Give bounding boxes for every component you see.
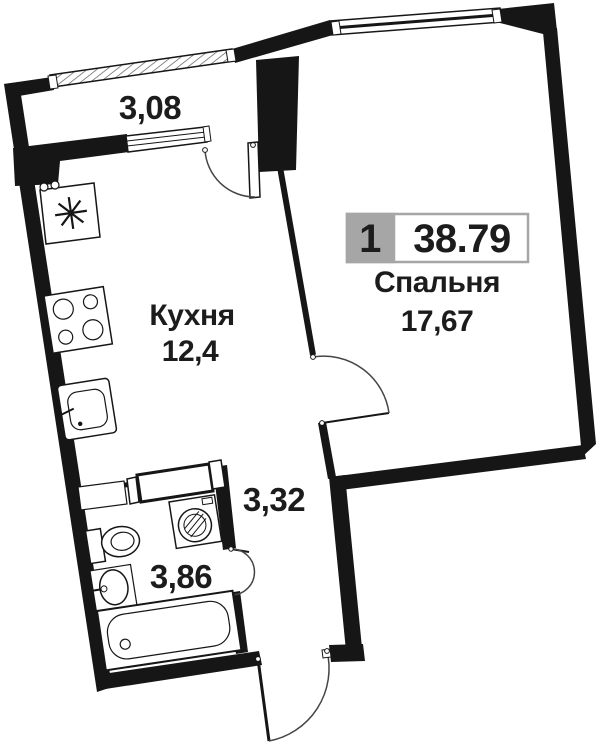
wall-top-right-corner	[498, 3, 557, 34]
entrance-door-leaf	[258, 659, 269, 741]
bedroom-window-left-stop	[331, 21, 341, 35]
band-left-jamb	[127, 477, 139, 504]
balcony-area-label: 3,08	[119, 89, 181, 126]
wall-hall-lower	[329, 475, 362, 651]
kitchen-window-right-jamb	[203, 126, 211, 142]
wall-kitchen-bedroom-partition	[280, 167, 313, 355]
entrance-door-arc	[269, 651, 329, 741]
wall-balcony-kitchen	[13, 134, 129, 186]
balcony-glazing-right-stop	[226, 49, 236, 62]
badge-room-count: 1	[359, 217, 381, 261]
bathroom-door-arc	[231, 549, 254, 595]
bedroom-name-label: Спальня	[374, 266, 500, 299]
wall-bedroom-bottom	[330, 445, 586, 491]
vent-knob-2	[51, 181, 59, 189]
wall-right	[543, 28, 596, 457]
kitchen-area-label: 12,4	[162, 335, 219, 368]
badge-total-area: 38.79	[413, 217, 511, 261]
kitchen-sink-icon	[57, 378, 117, 440]
vent-shaft-icon	[40, 181, 100, 244]
washing-machine-icon	[169, 495, 222, 549]
bedroom-door-arc	[313, 356, 389, 413]
hallway-area-label: 3,32	[243, 481, 305, 518]
wall-entrance-foot	[329, 644, 365, 662]
balcony-door-leaf	[248, 142, 260, 198]
stove-icon	[44, 287, 112, 354]
washbasin-icon	[90, 564, 137, 611]
bathroom-area-label: 3,86	[150, 558, 212, 595]
door-hinge-dots	[203, 143, 330, 662]
wall-top-middle	[232, 20, 333, 63]
floor-plan: 1 38.79 3,08 Кухня 12,4 Спальня 17,67 3,…	[0, 0, 600, 748]
balcony-glazing-window	[50, 49, 235, 87]
bedroom-door-leaf	[322, 413, 389, 423]
wall-balcony-bedroom-slab	[256, 56, 299, 172]
unit-badge: 1 38.79	[347, 214, 528, 262]
bathroom-shelf	[78, 481, 127, 510]
floor-plan-drawing: 1 38.79 3,08 Кухня 12,4 Спальня 17,67 3,…	[0, 0, 600, 748]
kitchen-name-label: Кухня	[149, 299, 234, 332]
bedroom-area-label: 17,67	[401, 305, 474, 338]
vent-knob-1	[40, 183, 48, 191]
balcony-glazing-left-stop	[48, 75, 58, 89]
bedroom-window-right-stop	[492, 9, 502, 23]
balcony-door-arc	[205, 150, 255, 197]
toilet-icon	[80, 523, 142, 565]
wall-hall-upper	[318, 422, 336, 479]
